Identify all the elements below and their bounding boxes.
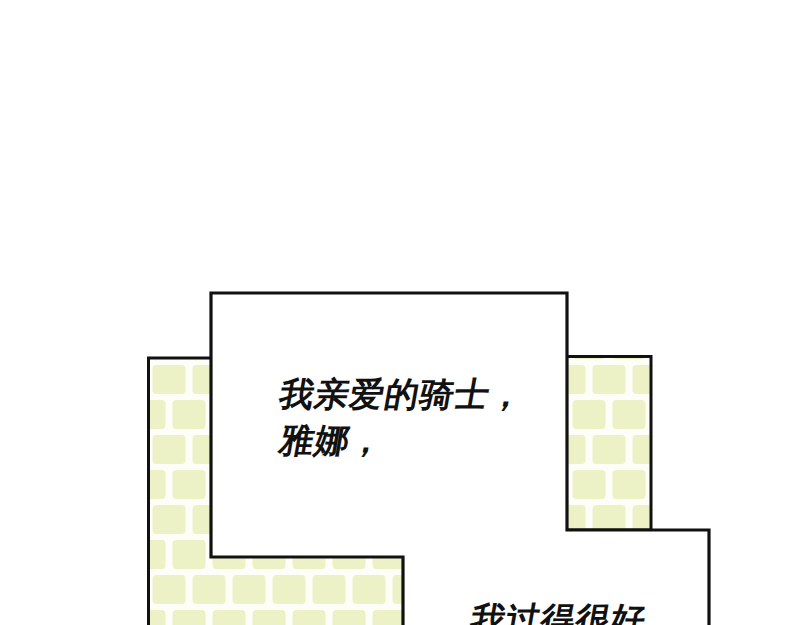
comic-page: 我亲爱的骑士， 雅娜， 我过得很好 xyxy=(0,0,800,625)
right-brick-wall xyxy=(566,357,652,531)
bottom-panel-text: 我过得很好 xyxy=(467,596,642,625)
speech-text: 我亲爱的骑士， 雅娜， xyxy=(276,371,521,463)
speech-line-2: 雅娜， xyxy=(276,417,529,463)
speech-line-1: 我亲爱的骑士， xyxy=(276,371,529,417)
comic-panels xyxy=(0,0,800,625)
bottom-text-line: 我过得很好 xyxy=(467,596,650,625)
